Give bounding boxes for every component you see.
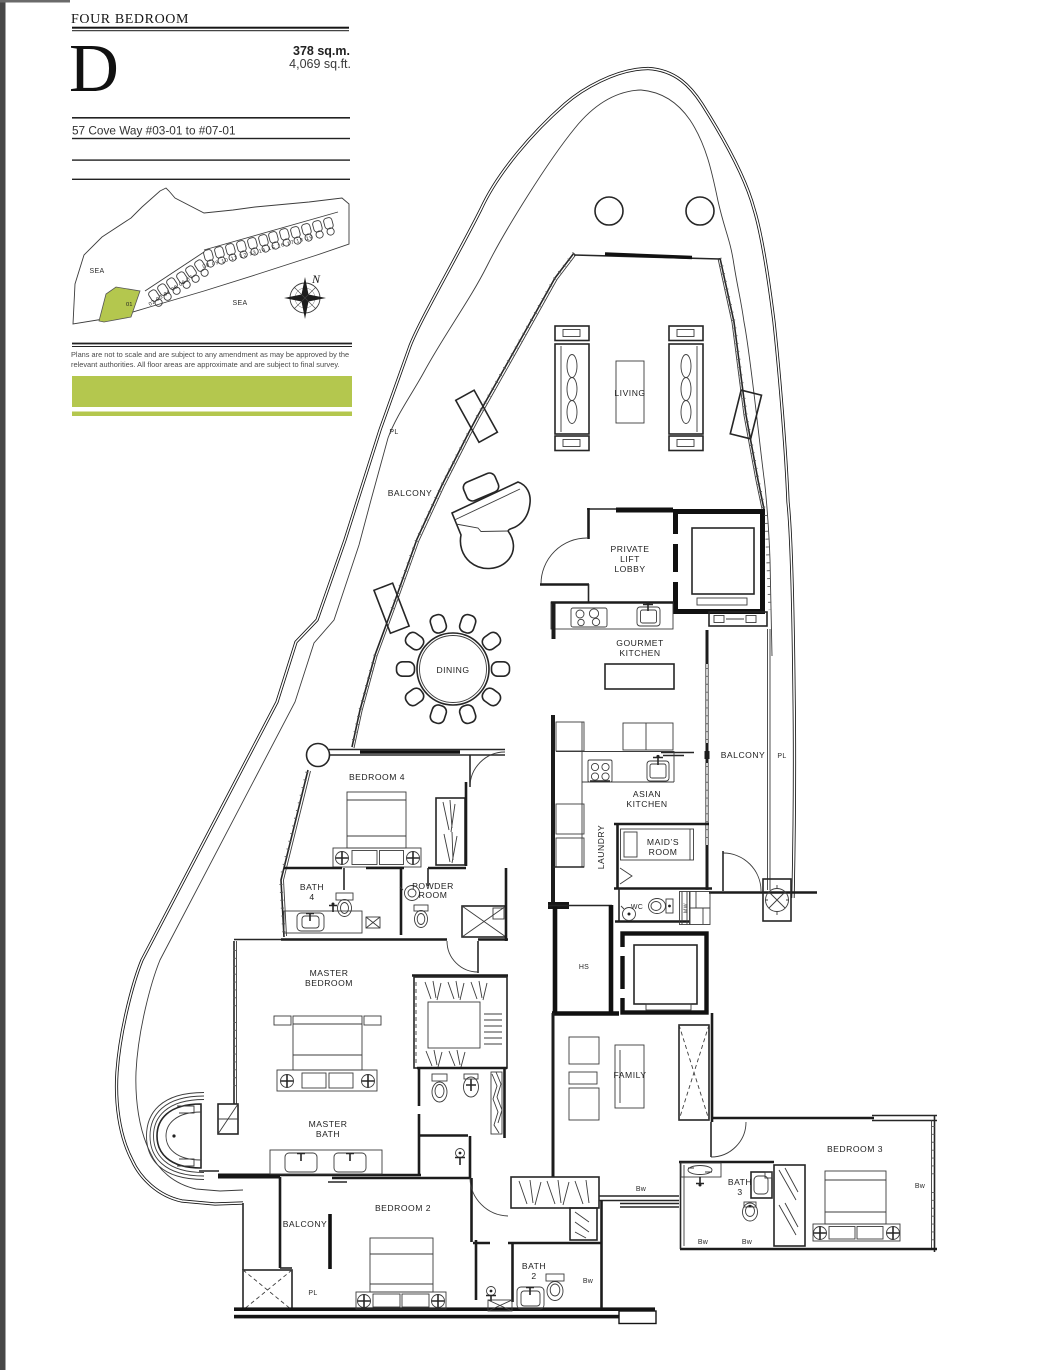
svg-text:HS: HS [579, 964, 589, 971]
svg-text:LOBBY: LOBBY [614, 564, 645, 574]
svg-text:2: 2 [531, 1271, 536, 1281]
svg-text:4: 4 [309, 892, 314, 902]
svg-text:DINING: DINING [436, 665, 469, 675]
svg-text:BATH: BATH [522, 1261, 546, 1271]
svg-text:BEDROOM 3: BEDROOM 3 [827, 1144, 883, 1154]
svg-text:SEA: SEA [233, 300, 248, 307]
svg-text:BEDROOM: BEDROOM [305, 978, 353, 988]
svg-text:3: 3 [737, 1187, 742, 1197]
svg-text:Bw: Bw [583, 1278, 594, 1285]
svg-text:MASTER: MASTER [310, 968, 349, 978]
svg-text:BATH: BATH [316, 1129, 340, 1139]
svg-text:Bw: Bw [636, 1186, 647, 1193]
svg-text:KITCHEN: KITCHEN [619, 648, 660, 658]
svg-text:MW: MW [683, 903, 689, 913]
svg-text:BALCONY: BALCONY [721, 750, 766, 760]
svg-text:01: 01 [126, 302, 132, 308]
svg-text:MASTER: MASTER [309, 1119, 348, 1129]
svg-text:ASIAN: ASIAN [633, 789, 661, 799]
svg-text:Bw: Bw [698, 1239, 709, 1246]
svg-text:57 Cove Way #03-01 to #07-01: 57 Cove Way #03-01 to #07-01 [72, 124, 236, 138]
svg-text:BATH: BATH [300, 882, 324, 892]
svg-text:BEDROOM 2: BEDROOM 2 [375, 1203, 431, 1213]
svg-text:KITCHEN: KITCHEN [626, 799, 667, 809]
svg-text:relevant authorities. All floo: relevant authorities. All floor areas ar… [71, 360, 340, 369]
svg-text:FOUR BEDROOM: FOUR BEDROOM [71, 12, 189, 27]
svg-text:BATH: BATH [728, 1177, 752, 1187]
svg-text:D: D [69, 30, 119, 106]
svg-text:ROOM: ROOM [649, 847, 678, 857]
svg-text:PL: PL [308, 1290, 317, 1297]
svg-text:LIVING: LIVING [614, 388, 645, 398]
svg-text:BEDROOM 4: BEDROOM 4 [349, 772, 405, 782]
svg-text:PRIVATE: PRIVATE [611, 544, 650, 554]
svg-text:SEA: SEA [90, 268, 105, 275]
svg-text:BALCONY: BALCONY [388, 488, 433, 498]
svg-text:4,069 sq.ft.: 4,069 sq.ft. [289, 57, 351, 71]
svg-text:BALCONY: BALCONY [283, 1219, 328, 1229]
svg-text:PL: PL [777, 753, 786, 760]
svg-text:FAMILY: FAMILY [614, 1070, 647, 1080]
svg-text:PL: PL [389, 429, 398, 436]
svg-text:ROOM: ROOM [419, 890, 448, 900]
svg-text:GOURMET: GOURMET [616, 638, 664, 648]
svg-text:N: N [311, 272, 321, 286]
svg-text:Bw: Bw [742, 1239, 753, 1246]
svg-text:LIFT: LIFT [620, 554, 640, 564]
svg-text:MAID’S: MAID’S [647, 837, 679, 847]
svg-text:WC: WC [631, 904, 643, 911]
svg-text:Plans are not to scale and are: Plans are not to scale and are subject t… [71, 350, 349, 359]
svg-text:378 sq.m.: 378 sq.m. [293, 44, 350, 58]
svg-text:LAUNDRY: LAUNDRY [596, 825, 606, 869]
svg-text:Bw: Bw [915, 1183, 926, 1190]
